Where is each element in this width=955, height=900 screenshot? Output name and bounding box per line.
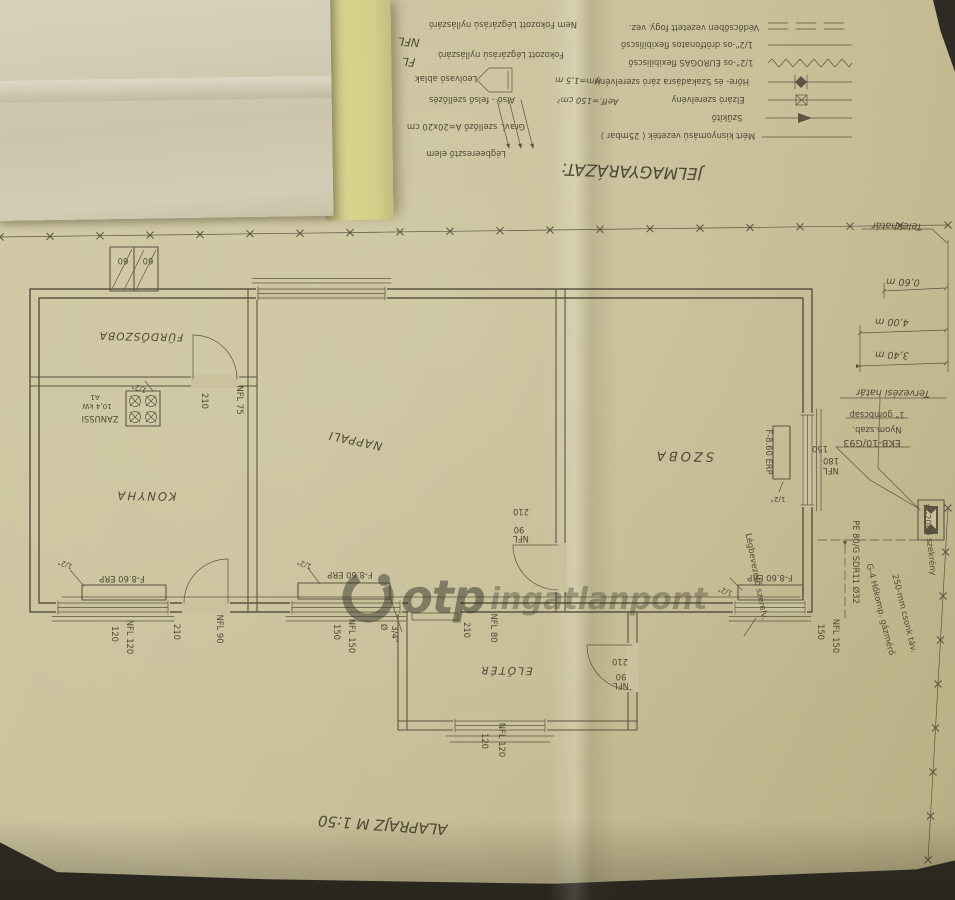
legend-item-label: Elzáró szerelvény xyxy=(671,95,744,105)
valve-label: 1" gombcsap xyxy=(849,410,904,420)
convector-tap-kitchen: 1/2" xyxy=(57,558,74,572)
legend-item-label: Védőcsőben vezetett fogy. vez. xyxy=(629,23,759,33)
stove-tap-size: 1/2" xyxy=(131,382,148,396)
chimney: 60 60 xyxy=(110,247,158,291)
drawing-scale-label: ALAPRAJZ M 1:50 xyxy=(317,811,448,838)
legend-title: JELMAGYARÁZAT: xyxy=(561,160,706,184)
watermark-brand: otp xyxy=(401,570,485,624)
convector-label-bedroom-side: F-8.60 ERP xyxy=(764,429,774,474)
legend-item-label: Fokozott Légzárású nyílászáró xyxy=(438,50,564,60)
watermark-logo-dot xyxy=(378,574,390,586)
pressure-reg-label: Nyom.szab. xyxy=(852,425,901,435)
photographed-floorplan: Telekhatár 0,60 m 4,00 m 3,40 m xyxy=(0,0,955,900)
white-paper-sheet xyxy=(0,0,334,221)
stove-power: 10,4 kW xyxy=(82,402,112,411)
room-label-bedroom: SZOBA xyxy=(654,447,714,463)
legend-item-label: Szűkítő xyxy=(712,113,743,123)
dim: NFL 120 xyxy=(497,723,507,757)
legend-item-label: 1/2"-os drótfonatos flexibiliscső xyxy=(621,40,753,50)
room-label-kitchen: KONYHA xyxy=(115,488,176,503)
dim: 120 xyxy=(110,626,120,642)
dim: NFL xyxy=(613,681,629,691)
dim: NFL 150 xyxy=(831,619,841,653)
watermark-suffix: ingatlanpont xyxy=(490,582,709,617)
dim: NFL 120 xyxy=(125,620,135,654)
dim: 210 xyxy=(462,622,472,638)
stove-code: A1 xyxy=(90,393,100,402)
dim: NFL 90 xyxy=(215,614,225,643)
site-dimensions: Telekhatár 0,60 m 4,00 m 3,40 m xyxy=(860,220,948,372)
dim: NFL 150 xyxy=(347,619,357,653)
branch-dia: Ø xyxy=(379,624,389,631)
dim: 150 xyxy=(332,624,342,640)
dim: 210 xyxy=(612,657,628,667)
dim: 210 xyxy=(200,393,210,409)
kitchen-exterior-door xyxy=(184,559,228,603)
dim: 90 xyxy=(514,525,525,535)
dim: 180 xyxy=(823,456,839,466)
dim: NFL xyxy=(513,534,529,544)
legend-item-value: Aeff.=150 cm² xyxy=(556,95,619,107)
legend-item-label: 1/2"-os EUROGAS flexibiliscső xyxy=(628,58,753,68)
room-label-bathroom: FÜRDŐSZOBA xyxy=(99,329,184,344)
chimney-dim-2: 60 xyxy=(143,256,154,266)
convector-label-living: F-8.60 ERP xyxy=(327,570,372,580)
legend-item-label: Légbeeresztő elem xyxy=(426,149,506,159)
dim: NFL 75 xyxy=(235,385,245,414)
window-symbol-icon xyxy=(477,68,512,92)
paper-fold xyxy=(0,76,332,103)
room-label-living: NAPPALI xyxy=(327,428,384,453)
pe-pipe-label: PE 80/G SDR11 Ø32 xyxy=(851,520,861,604)
legend-code-fl: FL xyxy=(402,55,416,70)
chimney-dim-1: 60 xyxy=(118,256,129,266)
legend-item-label: Mért kisnyomású vezeték ( 25mbar ) xyxy=(601,131,756,141)
legend-item-label: Nem Fokozott Légzárású nyílászáró xyxy=(429,20,577,30)
legend-item-label: Leolvasó ablak xyxy=(415,74,477,84)
dim: 210 xyxy=(513,507,529,517)
legend-item-label: Alsó - felső szellőzés xyxy=(429,95,515,105)
legend-item-label: Gravi. szellőző A=20x20 cm xyxy=(407,122,525,132)
windows xyxy=(52,279,821,743)
plot-boundary-label: Telekhatár xyxy=(871,220,923,233)
legend-item-label: Hőre- és Szakadásra záró szerelvény xyxy=(595,77,749,87)
regulator-label: EKB-10/G93 xyxy=(843,437,900,448)
dim: 90 xyxy=(616,672,627,682)
dim: 150 xyxy=(816,624,826,640)
dim: 150 xyxy=(812,444,828,454)
stove-brand: ZANUSSI xyxy=(82,414,119,424)
convector-tap-living: 1/2" xyxy=(296,558,313,572)
plot-boundary-fence xyxy=(0,225,948,860)
legend: JELMAGYARÁZAT: Mért kisnyomású vezeték (… xyxy=(397,20,852,184)
dim: NFL 80 xyxy=(489,613,499,642)
bathroom-door xyxy=(193,335,237,379)
convector-tap-bedroom-front: 1/2" xyxy=(717,585,734,599)
under-sheet-strip xyxy=(322,0,393,220)
convector-tap-bedroom-side: 1/2" xyxy=(771,495,786,504)
gas-service: 1" gombcsap Nyom.szab. EKB-10/G93 Tervez… xyxy=(744,386,946,656)
design-boundary-label: Tervezési határ xyxy=(855,386,930,399)
distance-060-label: 0,60 m xyxy=(886,275,920,287)
branch-size: 3/4" xyxy=(390,625,400,642)
legend-item-value: Hm=1,5 m xyxy=(555,75,601,87)
distance-340-label: 3,40 m xyxy=(875,348,909,360)
building-walls xyxy=(30,286,815,732)
dim: 210 xyxy=(172,624,182,640)
room-label-hall: ELŐTÉR xyxy=(479,664,533,679)
gas-stove: ZANUSSI 10,4 kW A1 1/2" xyxy=(82,381,160,426)
convector-label-kitchen: F-8.60 ERP xyxy=(99,574,144,584)
dim: NFL xyxy=(823,466,839,476)
distance-400-label: 4,00 m xyxy=(875,315,909,327)
legend-code-nfl: NFL xyxy=(397,34,420,49)
dim: 120 xyxy=(480,733,490,749)
